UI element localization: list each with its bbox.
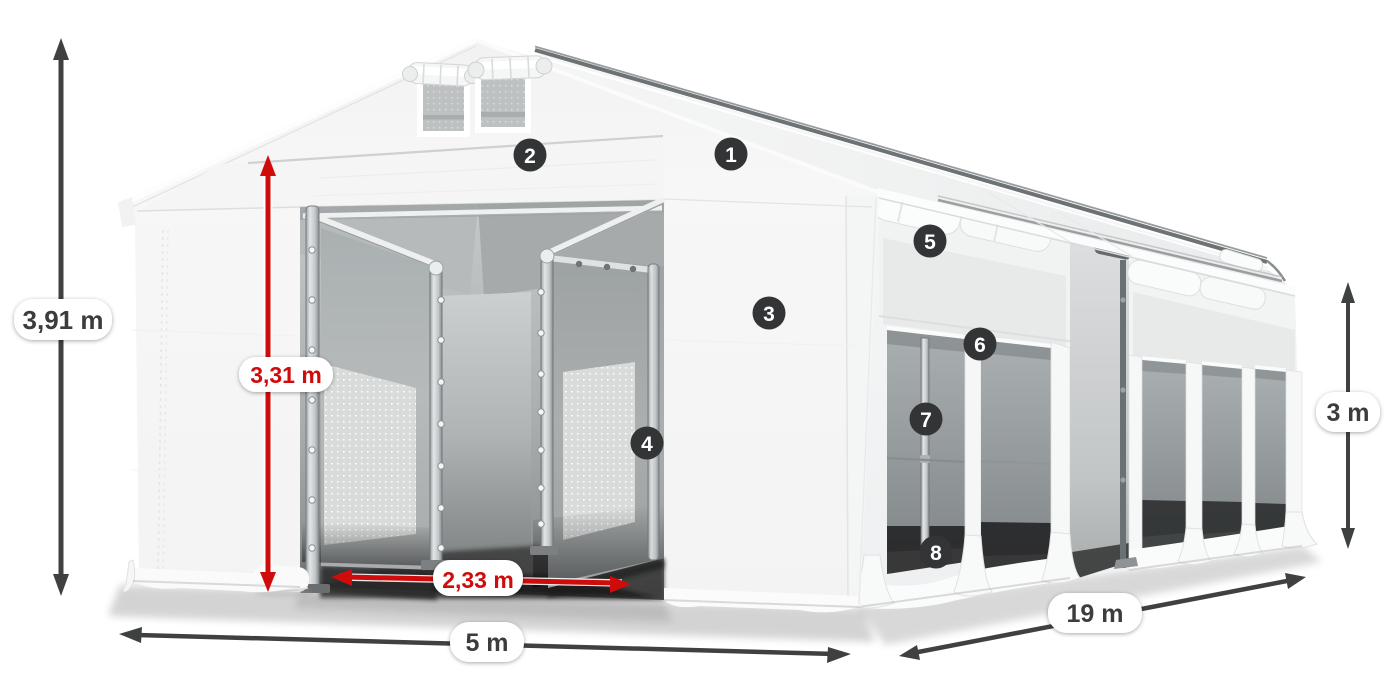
svg-text:5: 5 (924, 231, 936, 254)
svg-text:3 m: 3 m (1326, 399, 1369, 427)
svg-text:5 m: 5 m (465, 629, 508, 657)
svg-text:2,33 m: 2,33 m (442, 567, 514, 593)
svg-text:2: 2 (524, 145, 536, 168)
svg-text:4: 4 (641, 433, 653, 456)
svg-text:8: 8 (930, 542, 942, 565)
svg-text:3,91 m: 3,91 m (23, 305, 104, 335)
svg-text:19 m: 19 m (1067, 600, 1124, 628)
svg-text:1: 1 (725, 144, 737, 167)
svg-text:3: 3 (763, 303, 775, 326)
svg-text:3,31 m: 3,31 m (250, 362, 322, 388)
svg-text:6: 6 (974, 334, 986, 357)
svg-text:7: 7 (920, 409, 932, 432)
